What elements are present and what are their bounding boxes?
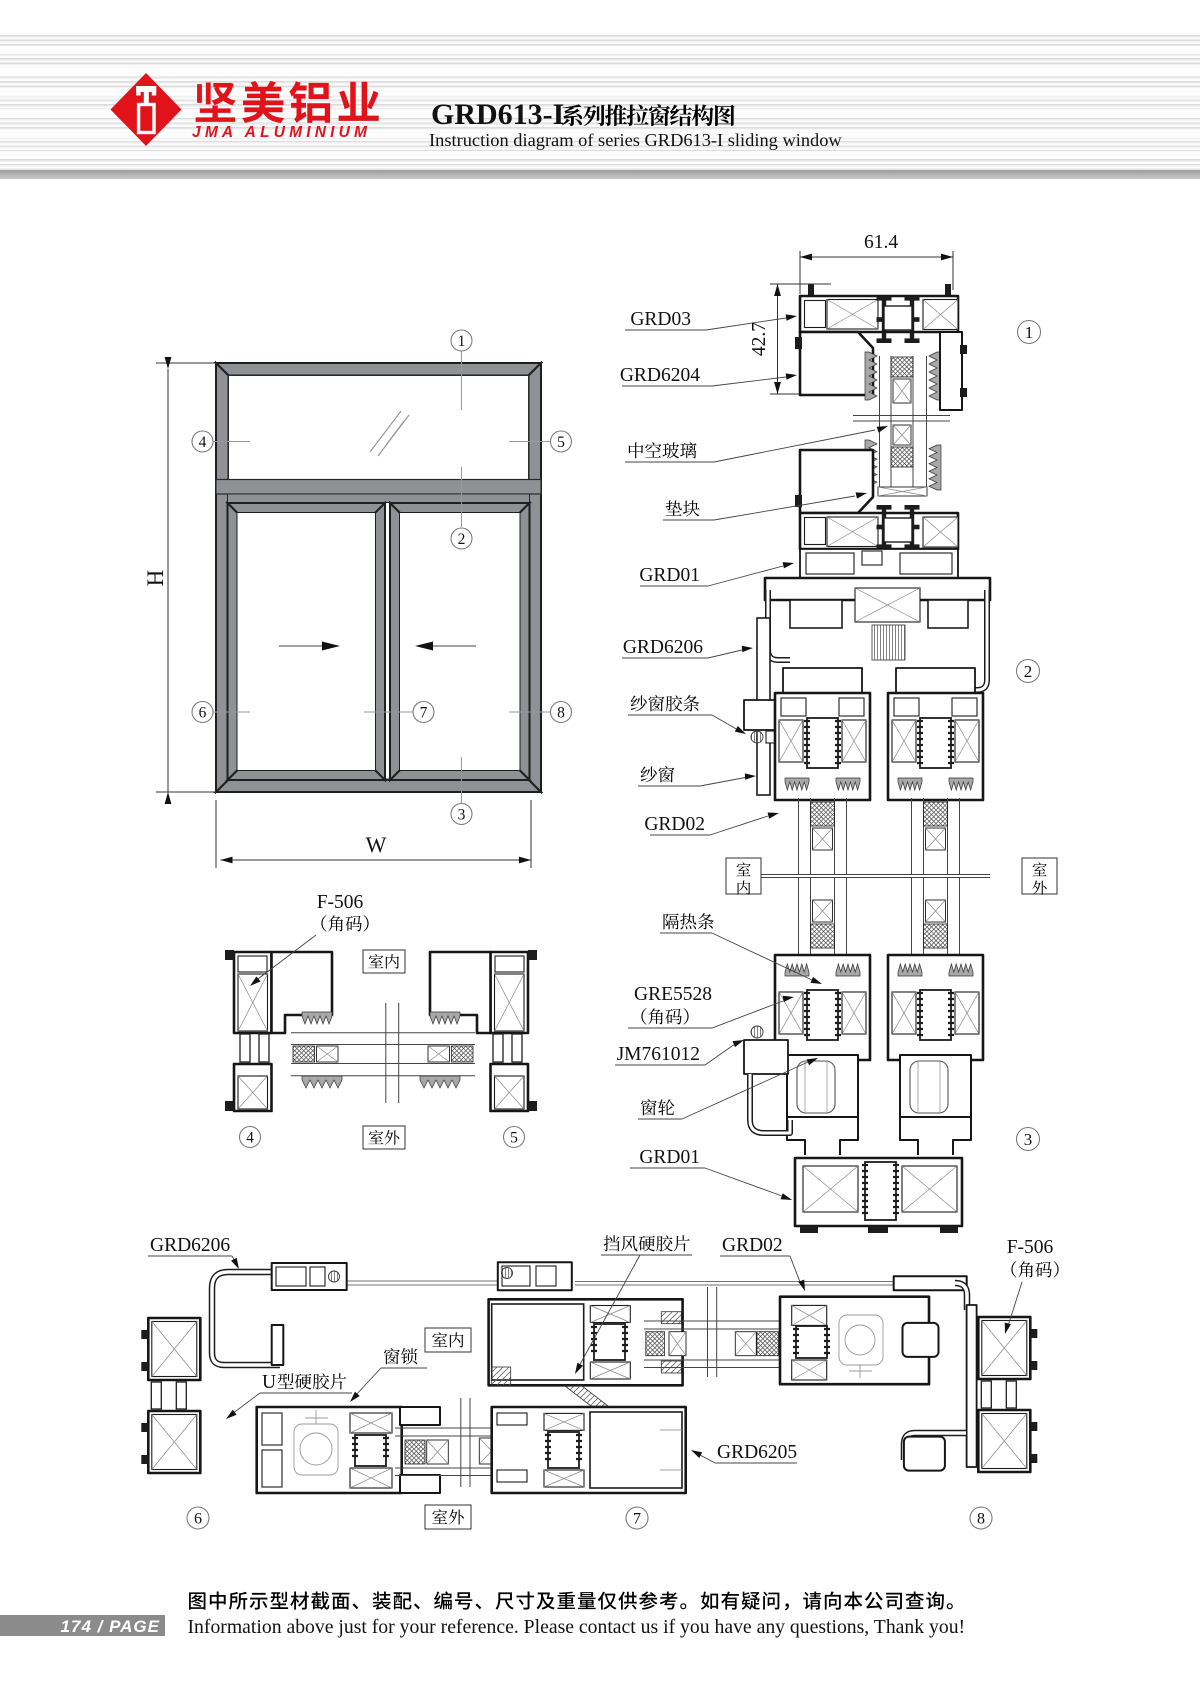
svg-text:GRD02: GRD02 bbox=[644, 814, 705, 835]
svg-text:JMA ALUMINIUM: JMA ALUMINIUM bbox=[192, 124, 371, 141]
svg-text:GRD01: GRD01 bbox=[639, 565, 700, 586]
svg-text:4: 4 bbox=[199, 434, 207, 451]
svg-text:JM761012: JM761012 bbox=[617, 1044, 700, 1065]
svg-text:Information above just for you: Information above just for your referenc… bbox=[188, 1616, 966, 1638]
svg-text:8: 8 bbox=[977, 1511, 985, 1528]
svg-text:4: 4 bbox=[246, 1129, 254, 1146]
svg-text:1: 1 bbox=[458, 333, 466, 350]
svg-text:W: W bbox=[366, 832, 387, 857]
svg-text:GRD613-I: GRD613-I bbox=[431, 98, 564, 131]
svg-text:5: 5 bbox=[557, 434, 565, 451]
svg-text:U: U bbox=[262, 1372, 276, 1393]
svg-text:F-506: F-506 bbox=[317, 892, 364, 913]
svg-text:Instruction diagram of series: Instruction diagram of series GRD613-I s… bbox=[429, 130, 842, 150]
svg-text:GRD6206: GRD6206 bbox=[150, 1235, 230, 1256]
svg-text:5: 5 bbox=[510, 1129, 518, 1146]
svg-text:2: 2 bbox=[458, 531, 466, 548]
svg-text:GRD6204: GRD6204 bbox=[620, 365, 700, 386]
svg-text:6: 6 bbox=[199, 704, 207, 721]
svg-text:61.4: 61.4 bbox=[864, 232, 898, 253]
svg-text:GRD01: GRD01 bbox=[639, 1147, 700, 1168]
svg-text:GRD6205: GRD6205 bbox=[717, 1442, 797, 1463]
svg-text:H: H bbox=[143, 570, 168, 587]
svg-text:GRE5528: GRE5528 bbox=[634, 984, 712, 1005]
svg-text:3: 3 bbox=[458, 806, 466, 823]
svg-text:1: 1 bbox=[1025, 323, 1034, 342]
svg-text:GRD03: GRD03 bbox=[630, 309, 691, 330]
svg-text:174 / PAGE: 174 / PAGE bbox=[61, 1617, 160, 1636]
svg-text:GRD6206: GRD6206 bbox=[623, 637, 703, 658]
svg-text:3: 3 bbox=[1024, 1130, 1033, 1149]
svg-text:8: 8 bbox=[557, 704, 565, 721]
svg-text:2: 2 bbox=[1024, 662, 1033, 681]
svg-text:6: 6 bbox=[194, 1511, 202, 1528]
svg-text:F-506: F-506 bbox=[1007, 1237, 1054, 1258]
svg-text:7: 7 bbox=[420, 704, 428, 721]
svg-text:42.7: 42.7 bbox=[749, 322, 770, 356]
svg-text:GRD02: GRD02 bbox=[722, 1235, 783, 1256]
svg-text:7: 7 bbox=[633, 1511, 641, 1528]
